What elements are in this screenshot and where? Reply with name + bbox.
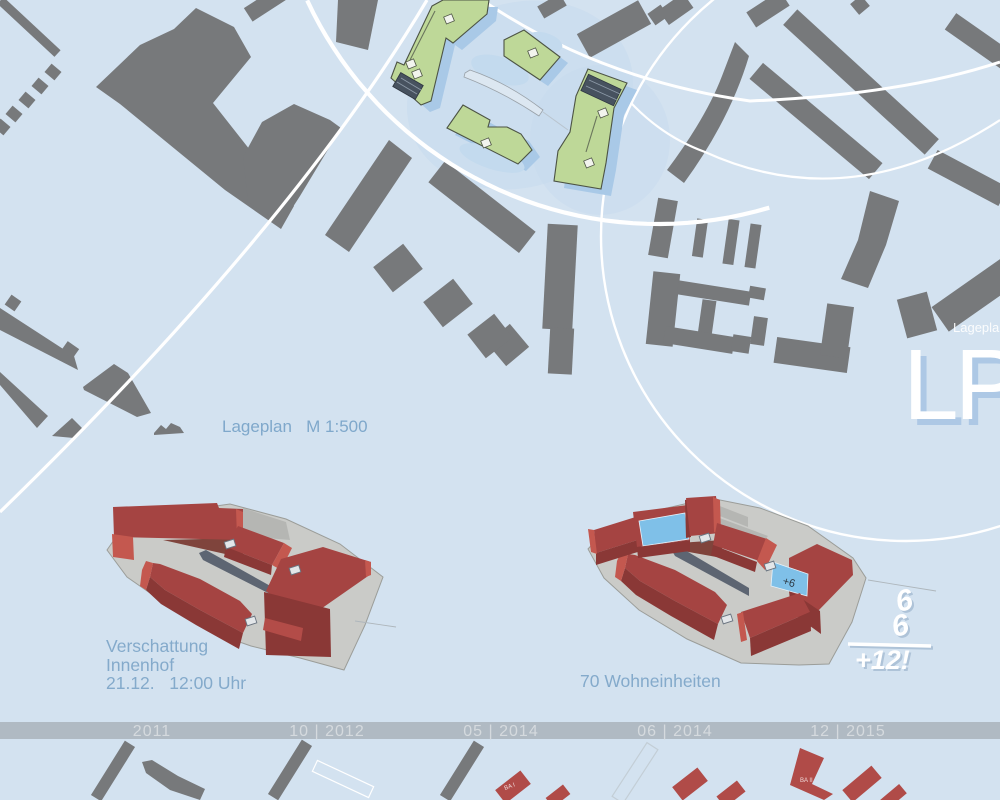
svg-text:Lageplan M 1:500: Lageplan M 1:500 (222, 417, 368, 436)
svg-text:06 | 2014: 06 | 2014 (637, 723, 712, 740)
svg-text:BA II: BA II (800, 778, 813, 784)
svg-text:Verschattung: Verschattung (106, 636, 208, 656)
svg-text:2011: 2011 (133, 723, 171, 740)
svg-text:05 | 2014: 05 | 2014 (463, 723, 538, 740)
svg-text:12 | 2015: 12 | 2015 (810, 723, 885, 740)
svg-text:LP: LP (903, 329, 1000, 441)
svg-text:21.12. 12:00 Uhr: 21.12. 12:00 Uhr (106, 673, 246, 693)
svg-text:10 | 2012: 10 | 2012 (289, 723, 364, 740)
svg-text:+12!: +12! (855, 645, 910, 675)
svg-text:70 Wohneinheiten: 70 Wohneinheiten (580, 671, 721, 691)
svg-text:Innenhof: Innenhof (106, 655, 174, 675)
